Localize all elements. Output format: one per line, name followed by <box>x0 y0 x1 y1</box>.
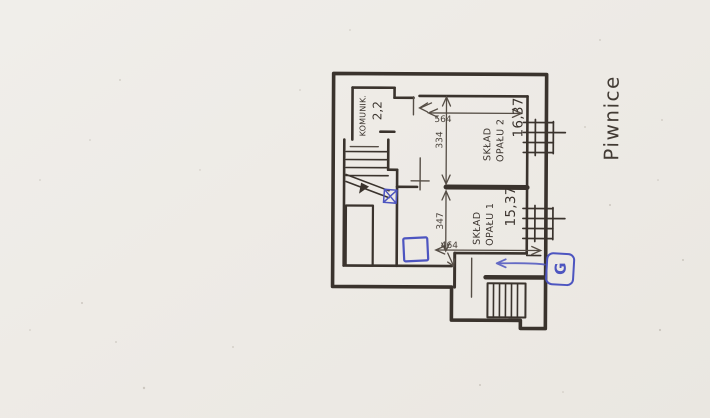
room-sklad1-name-line2: OPAŁU 1 <box>485 203 496 246</box>
pen-square-mark <box>403 237 428 261</box>
scan-noise-speckles <box>29 29 684 393</box>
stair-direction-arrow <box>359 183 369 194</box>
room-sklad2-name-line1: SKŁAD <box>482 128 493 161</box>
window-symbol-upper <box>523 119 565 155</box>
room-sklad1-area: 15,37 <box>503 186 519 226</box>
floor-plan-svg: Piwnice KOMUNIK. 2,2 SKŁAD OPAŁU 2 16,37… <box>0 0 710 418</box>
pen-letter-box: G <box>546 253 575 286</box>
main-staircase <box>346 152 389 198</box>
pen-left-arrow <box>497 259 545 267</box>
scanned-floor-plan-page: Piwnice KOMUNIK. 2,2 SKŁAD OPAŁU 2 16,37… <box>0 0 710 418</box>
dimension-bottom-width: 464 <box>441 241 459 251</box>
pen-letter-label: G <box>552 262 570 274</box>
room-komunik-name: KOMUNIK. <box>358 95 367 137</box>
floor-title-label: Piwnice <box>599 75 623 161</box>
room-sklad2-area: 16,37 <box>510 97 526 137</box>
dimension-lower-depth: 347 <box>436 212 446 229</box>
dimension-top-width: 564 <box>434 115 452 125</box>
window-symbol-lower <box>523 205 565 241</box>
room-komunik-area: 2,2 <box>370 101 384 120</box>
room-sklad1-name-line1: SKŁAD <box>472 211 483 244</box>
dimension-upper-depth: 334 <box>435 131 445 149</box>
entrance-staircase <box>487 283 525 317</box>
room-sklad2-name-line2: OPAŁU 2 <box>495 119 506 162</box>
